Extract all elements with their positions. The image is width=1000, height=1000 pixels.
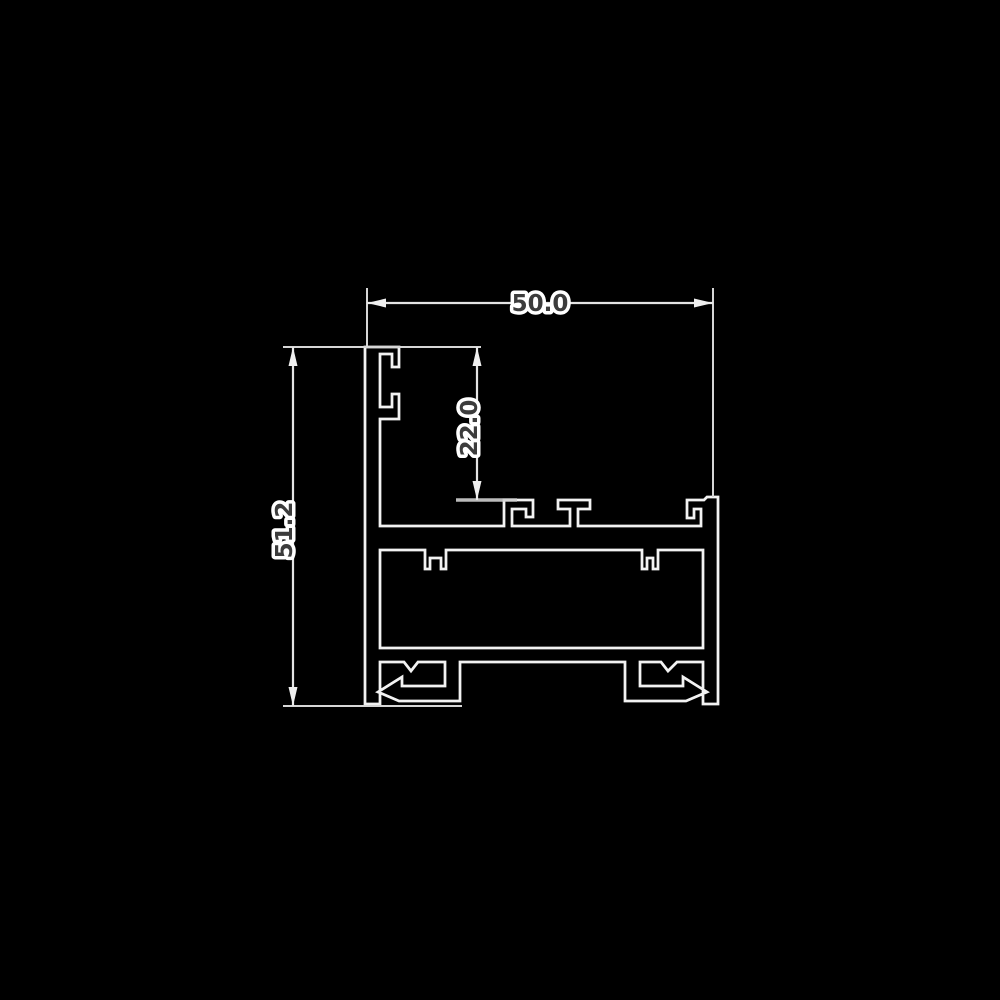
width-arrow-right: [694, 299, 713, 308]
channel-depth-dimension-label: 22.0: [457, 400, 483, 457]
channel-depth-arrow-top: [473, 347, 482, 366]
height-dimension-label: 51.2: [272, 502, 298, 559]
profile-drawing: 50.0 51.2 22.0: [0, 0, 1000, 1000]
height-arrow-bottom: [289, 687, 298, 706]
drawing-canvas: 50.0 51.2 22.0: [0, 0, 1000, 1000]
width-arrow-left: [367, 299, 386, 308]
width-dimension-label: 50.0: [512, 291, 569, 317]
height-arrow-top: [289, 347, 298, 366]
profile-outline: [365, 347, 718, 704]
channel-depth-arrow-bottom: [473, 481, 482, 500]
